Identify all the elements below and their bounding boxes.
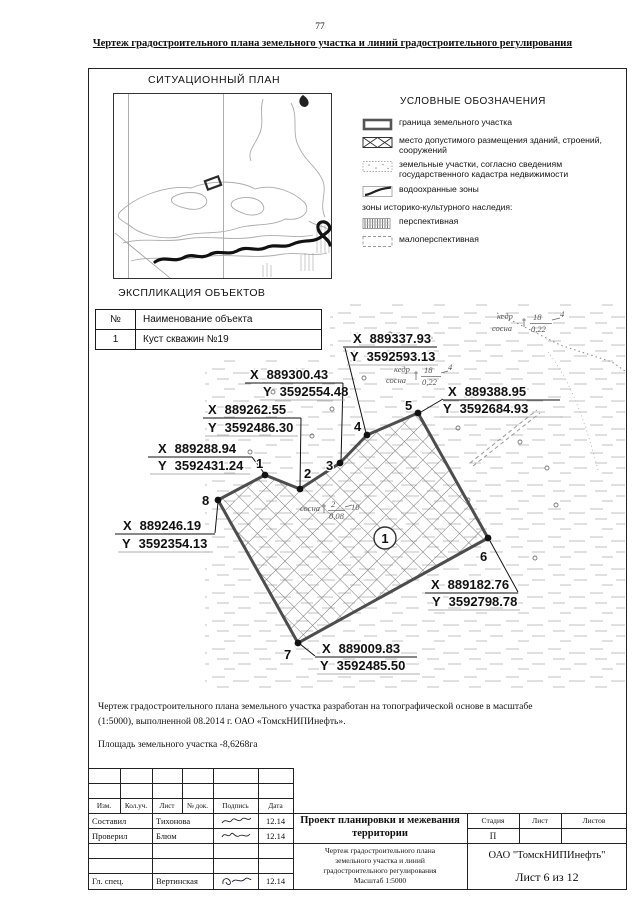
project-name: Проект планировки и межевания территории xyxy=(293,813,467,843)
tb-name: Вертинская xyxy=(156,873,213,888)
svg-text:5: 5 xyxy=(405,398,412,413)
doc-name: Чертеж градостроительного плана земельно… xyxy=(293,846,467,887)
legend-label: граница земельного участка xyxy=(399,117,512,127)
water-swatch-icon xyxy=(362,185,394,198)
company-name: ОАО "ТомскНИПИнефть" xyxy=(467,846,627,864)
legend-label: место допустимого размещения зданий, стр… xyxy=(399,135,608,155)
svg-text:7: 7 xyxy=(284,647,291,662)
svg-text:18: 18 xyxy=(533,312,542,322)
legend-item-water: водоохранные зоны xyxy=(362,184,608,198)
doc-line: земельного участка и линий xyxy=(293,856,467,866)
svg-text:кедр: кедр xyxy=(497,311,513,321)
survey-drawing: X889288.94 Y3592431.24 X889262.55 Y35924… xyxy=(88,298,627,698)
legend-item-perspective: перспективная xyxy=(362,216,608,230)
tb-name: Блюм xyxy=(156,828,213,843)
situational-plan-title: СИТУАЦИОННЫЙ ПЛАН xyxy=(148,74,280,86)
tb-role: Гл. спец. xyxy=(92,873,152,888)
sheets-label: Листов xyxy=(561,813,627,828)
svg-text:сосна: сосна xyxy=(386,375,406,385)
table-row: 1 Куст скважин №19 xyxy=(95,330,322,350)
tb-header-podpis: Подпись xyxy=(213,798,258,813)
column-header: № xyxy=(96,310,136,329)
legend-item-low-perspective: малоперспективная xyxy=(362,234,608,248)
svg-text:сосна: сосна xyxy=(300,503,320,513)
tb-date: 12.14 xyxy=(258,873,293,888)
cadastre-swatch-icon xyxy=(362,160,394,173)
svg-text:18: 18 xyxy=(424,365,433,375)
svg-text:кедр: кедр xyxy=(394,364,410,374)
tb-role: Проверил xyxy=(92,828,152,843)
sheet-label: Лист xyxy=(519,813,561,828)
legend-label: земельные участки, согласно сведениям го… xyxy=(399,159,608,179)
svg-text:10: 10 xyxy=(351,502,360,512)
page-number: 77 xyxy=(0,22,640,32)
tb-header-data: Дата xyxy=(258,798,293,813)
tb-header-koluch: Кол.уч. xyxy=(120,798,152,813)
svg-text:3: 3 xyxy=(326,458,333,473)
tb-date: 12.14 xyxy=(258,813,293,828)
legend-label: водоохранные зоны xyxy=(399,184,479,194)
svg-text:4: 4 xyxy=(354,419,362,434)
situational-plan-map xyxy=(113,93,332,279)
title-block: Изм. Кол.уч. Лист № док. Подпись Дата Со… xyxy=(88,768,627,889)
legend-item-cadastre: земельные участки, согласно сведениям го… xyxy=(362,159,608,179)
tb-header-dok: № док. xyxy=(182,798,213,813)
tb-header-list: Лист xyxy=(152,798,182,813)
svg-text:0,22: 0,22 xyxy=(422,377,438,387)
legend-item-placement: место допустимого размещения зданий, стр… xyxy=(362,135,608,155)
map-border xyxy=(114,94,332,279)
tb-date: 12.14 xyxy=(258,828,293,843)
page-title: Чертеж градостроительного плана земельно… xyxy=(60,38,605,49)
legend-title: УСЛОВНЫЕ ОБОЗНАЧЕНИЯ xyxy=(400,96,546,107)
svg-text:X889246.19: X889246.19 xyxy=(123,518,201,533)
signature xyxy=(213,813,258,828)
legend-subheading: зоны историко-культурного наследия: xyxy=(362,202,608,212)
svg-text:Y3592354.13: Y3592354.13 xyxy=(122,536,207,551)
boundary-swatch-icon xyxy=(362,118,394,131)
signature xyxy=(213,828,258,843)
legend-item-boundary: граница земельного участка xyxy=(362,117,608,131)
note-basis: Чертеж градостроительного плана земельно… xyxy=(98,700,546,730)
stage-value: П xyxy=(467,828,519,843)
placement-swatch-icon xyxy=(362,136,394,149)
sheet-info: Лист 6 из 12 xyxy=(467,868,627,887)
document-page: 77 Чертеж градостроительного плана земел… xyxy=(0,0,640,905)
legend-label: перспективная xyxy=(399,216,458,226)
explication-table: № Наименование объекта 1 Куст скважин №1… xyxy=(95,309,322,350)
plot-area-number: 1 xyxy=(374,527,396,549)
column-header: Наименование объекта xyxy=(136,310,321,329)
perspective-swatch-icon xyxy=(362,217,394,230)
object-number: 1 xyxy=(96,330,136,349)
doc-line: Чертеж градостроительного плана xyxy=(293,846,467,856)
svg-text:Y3592431.24: Y3592431.24 xyxy=(158,458,244,473)
svg-text:сосна: сосна xyxy=(492,323,512,333)
svg-text:8: 8 xyxy=(202,493,209,508)
svg-text:0,22: 0,22 xyxy=(531,324,547,334)
signature xyxy=(213,873,258,888)
legend: граница земельного участка место допусти… xyxy=(362,117,608,252)
low-perspective-swatch-icon xyxy=(362,235,394,248)
svg-text:1: 1 xyxy=(381,531,388,546)
svg-text:6: 6 xyxy=(480,549,487,564)
doc-line: Масштаб 1:5000 xyxy=(293,876,467,886)
tb-name: Тихонова xyxy=(156,813,213,828)
explication-header-row: № Наименование объекта xyxy=(95,309,322,330)
tb-header-izm: Изм. xyxy=(88,798,120,813)
stage-label: Стадия xyxy=(467,813,519,828)
doc-line: градостроительного регулирования xyxy=(293,866,467,876)
note-area: Площадь земельного участка -8,6268га xyxy=(98,738,546,753)
svg-text:X889288.94: X889288.94 xyxy=(158,441,237,456)
legend-label: малоперспективная xyxy=(399,234,479,244)
svg-text:0,08: 0,08 xyxy=(329,511,345,521)
object-name: Куст скважин №19 xyxy=(136,330,321,349)
svg-text:1: 1 xyxy=(256,456,263,471)
svg-text:2: 2 xyxy=(304,466,311,481)
tb-role: Составил xyxy=(92,813,152,828)
